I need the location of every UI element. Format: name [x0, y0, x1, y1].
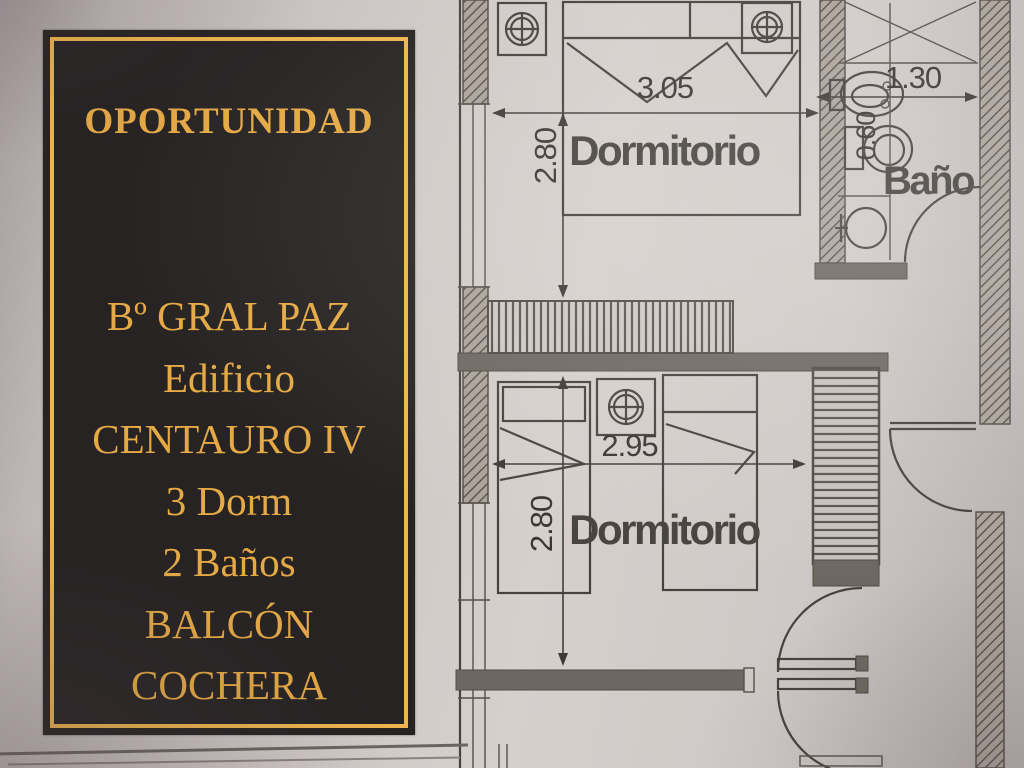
dim-bathroom-width: 1.30 — [858, 62, 968, 94]
single-bed-right — [663, 375, 757, 590]
dim-bedroom2-depth: 2.80 — [526, 479, 558, 569]
advert-image: Dormitorio 3.05 2.80 Baño 1.30 0.60 2.95… — [0, 0, 1024, 768]
double-swing-door — [778, 588, 868, 768]
room-label-bedroom2: Dormitorio — [558, 509, 770, 551]
floor-plan — [430, 0, 1024, 768]
balcony-railing — [488, 301, 733, 353]
banner-line: 2 Baños — [43, 532, 415, 594]
left-wall-mid — [463, 287, 488, 503]
banner-feature-list: Bº GRAL PAZ Edificio CENTAURO IV 3 Dorm … — [43, 286, 415, 717]
dim-bathroom-depth: 0.60 — [850, 91, 882, 181]
right-wall-top — [980, 0, 1010, 424]
room-label-bedroom1: Dormitorio — [558, 130, 770, 172]
ceiling-light-icon — [498, 3, 546, 55]
dim-bedroom1-depth: 2.80 — [530, 111, 562, 201]
banner-line: Bº GRAL PAZ — [43, 286, 415, 348]
bottom-wall — [456, 670, 744, 690]
dim-bedroom1-width: 3.05 — [610, 72, 720, 104]
hall-door-arc — [890, 423, 976, 511]
promo-banner: OPORTUNIDAD Bº GRAL PAZ Edificio CENTAUR… — [43, 30, 415, 735]
ceiling-light-icon — [597, 379, 655, 435]
closet — [813, 368, 879, 586]
banner-line: 3 Dorm — [43, 471, 415, 533]
dim-bedroom2-width: 2.95 — [582, 430, 677, 462]
banner-line: CENTAURO IV — [43, 409, 415, 471]
shower-area — [838, 2, 978, 63]
banner-line: COCHERA — [43, 655, 415, 717]
ceiling-light-icon — [742, 3, 792, 53]
plan-edge-line — [8, 756, 460, 765]
double-bed — [563, 2, 800, 215]
room-label-bathroom: Baño — [868, 160, 988, 202]
door-jamb — [744, 668, 754, 692]
banner-line: BALCÓN — [43, 594, 415, 656]
plan-fragments — [499, 744, 882, 768]
bathroom-bottom-wall — [815, 263, 907, 279]
banner-line: Edificio — [43, 348, 415, 410]
plan-edge-line — [0, 743, 468, 755]
left-wall-top — [463, 0, 488, 104]
banner-title: OPORTUNIDAD — [43, 100, 415, 143]
right-wall-bottom — [976, 512, 1004, 768]
